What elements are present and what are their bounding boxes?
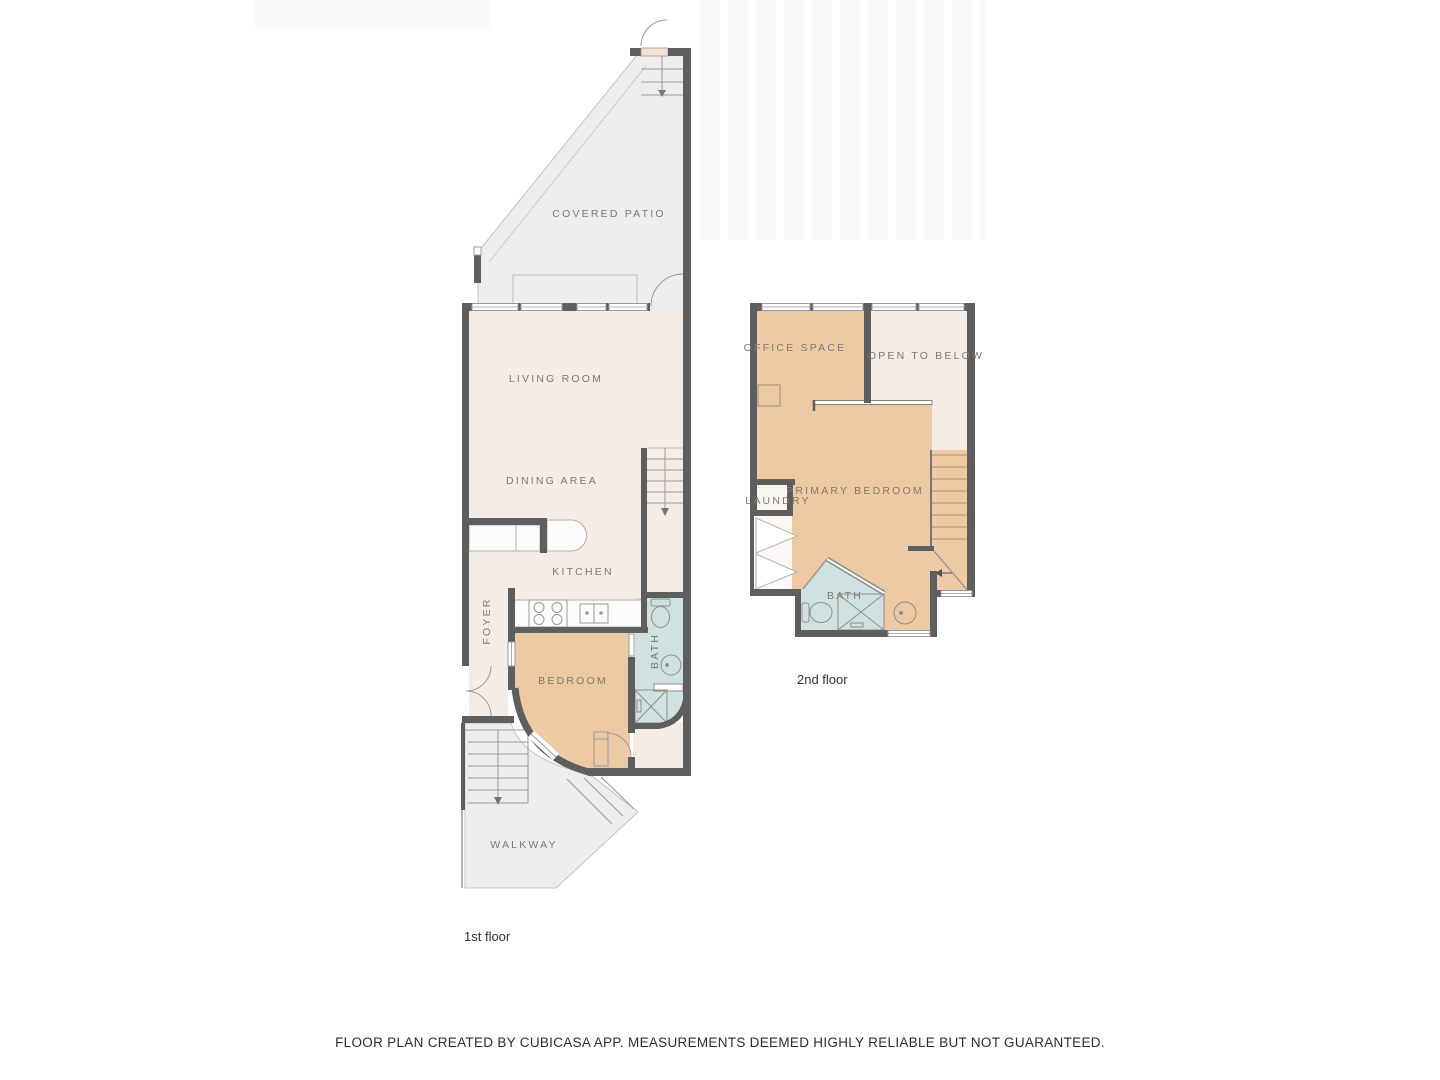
loft-railing <box>813 401 932 405</box>
room-label-walkway: WALKWAY <box>490 839 558 851</box>
room-label-bedroom: BEDROOM <box>538 675 608 687</box>
room-label-office-space: OFFICE SPACE <box>744 342 847 354</box>
room-label-kitchen: KITCHEN <box>552 566 614 578</box>
entry-door-swing-arc <box>641 20 667 46</box>
stairwell-floor <box>932 450 968 592</box>
covered-patio-region <box>478 20 688 306</box>
closet-room-floor <box>633 723 683 770</box>
kitchen-peninsula <box>547 520 586 551</box>
first-floor-plan <box>461 20 691 888</box>
room-label-laundry: LAUNDRY <box>745 495 810 507</box>
first-floor-caption: 1st floor <box>464 929 510 944</box>
room-label-open-to-below: OPEN TO BELOW <box>868 350 984 362</box>
room-label-dining-area: DINING AREA <box>506 475 598 487</box>
room-label-living-room: LIVING ROOM <box>509 373 603 385</box>
second-floor-caption: 2nd floor <box>797 672 848 687</box>
entry-door-sill <box>641 48 668 56</box>
room-label-bath-1f: BATH <box>649 633 661 669</box>
disclaimer-text: FLOOR PLAN CREATED BY CUBICASA APP. MEAS… <box>0 1035 1440 1050</box>
room-label-foyer: FOYER <box>481 597 493 644</box>
floor-plan-drawing <box>0 0 1440 1080</box>
room-label-bath-2f: BATH <box>827 590 863 602</box>
floor-plan-page: { "document": { "type": "floor-plan", "d… <box>0 0 1440 1080</box>
stair-railing-stub <box>908 546 934 551</box>
bedroom-floor <box>515 633 630 770</box>
room-label-covered-patio: COVERED PATIO <box>552 208 665 220</box>
